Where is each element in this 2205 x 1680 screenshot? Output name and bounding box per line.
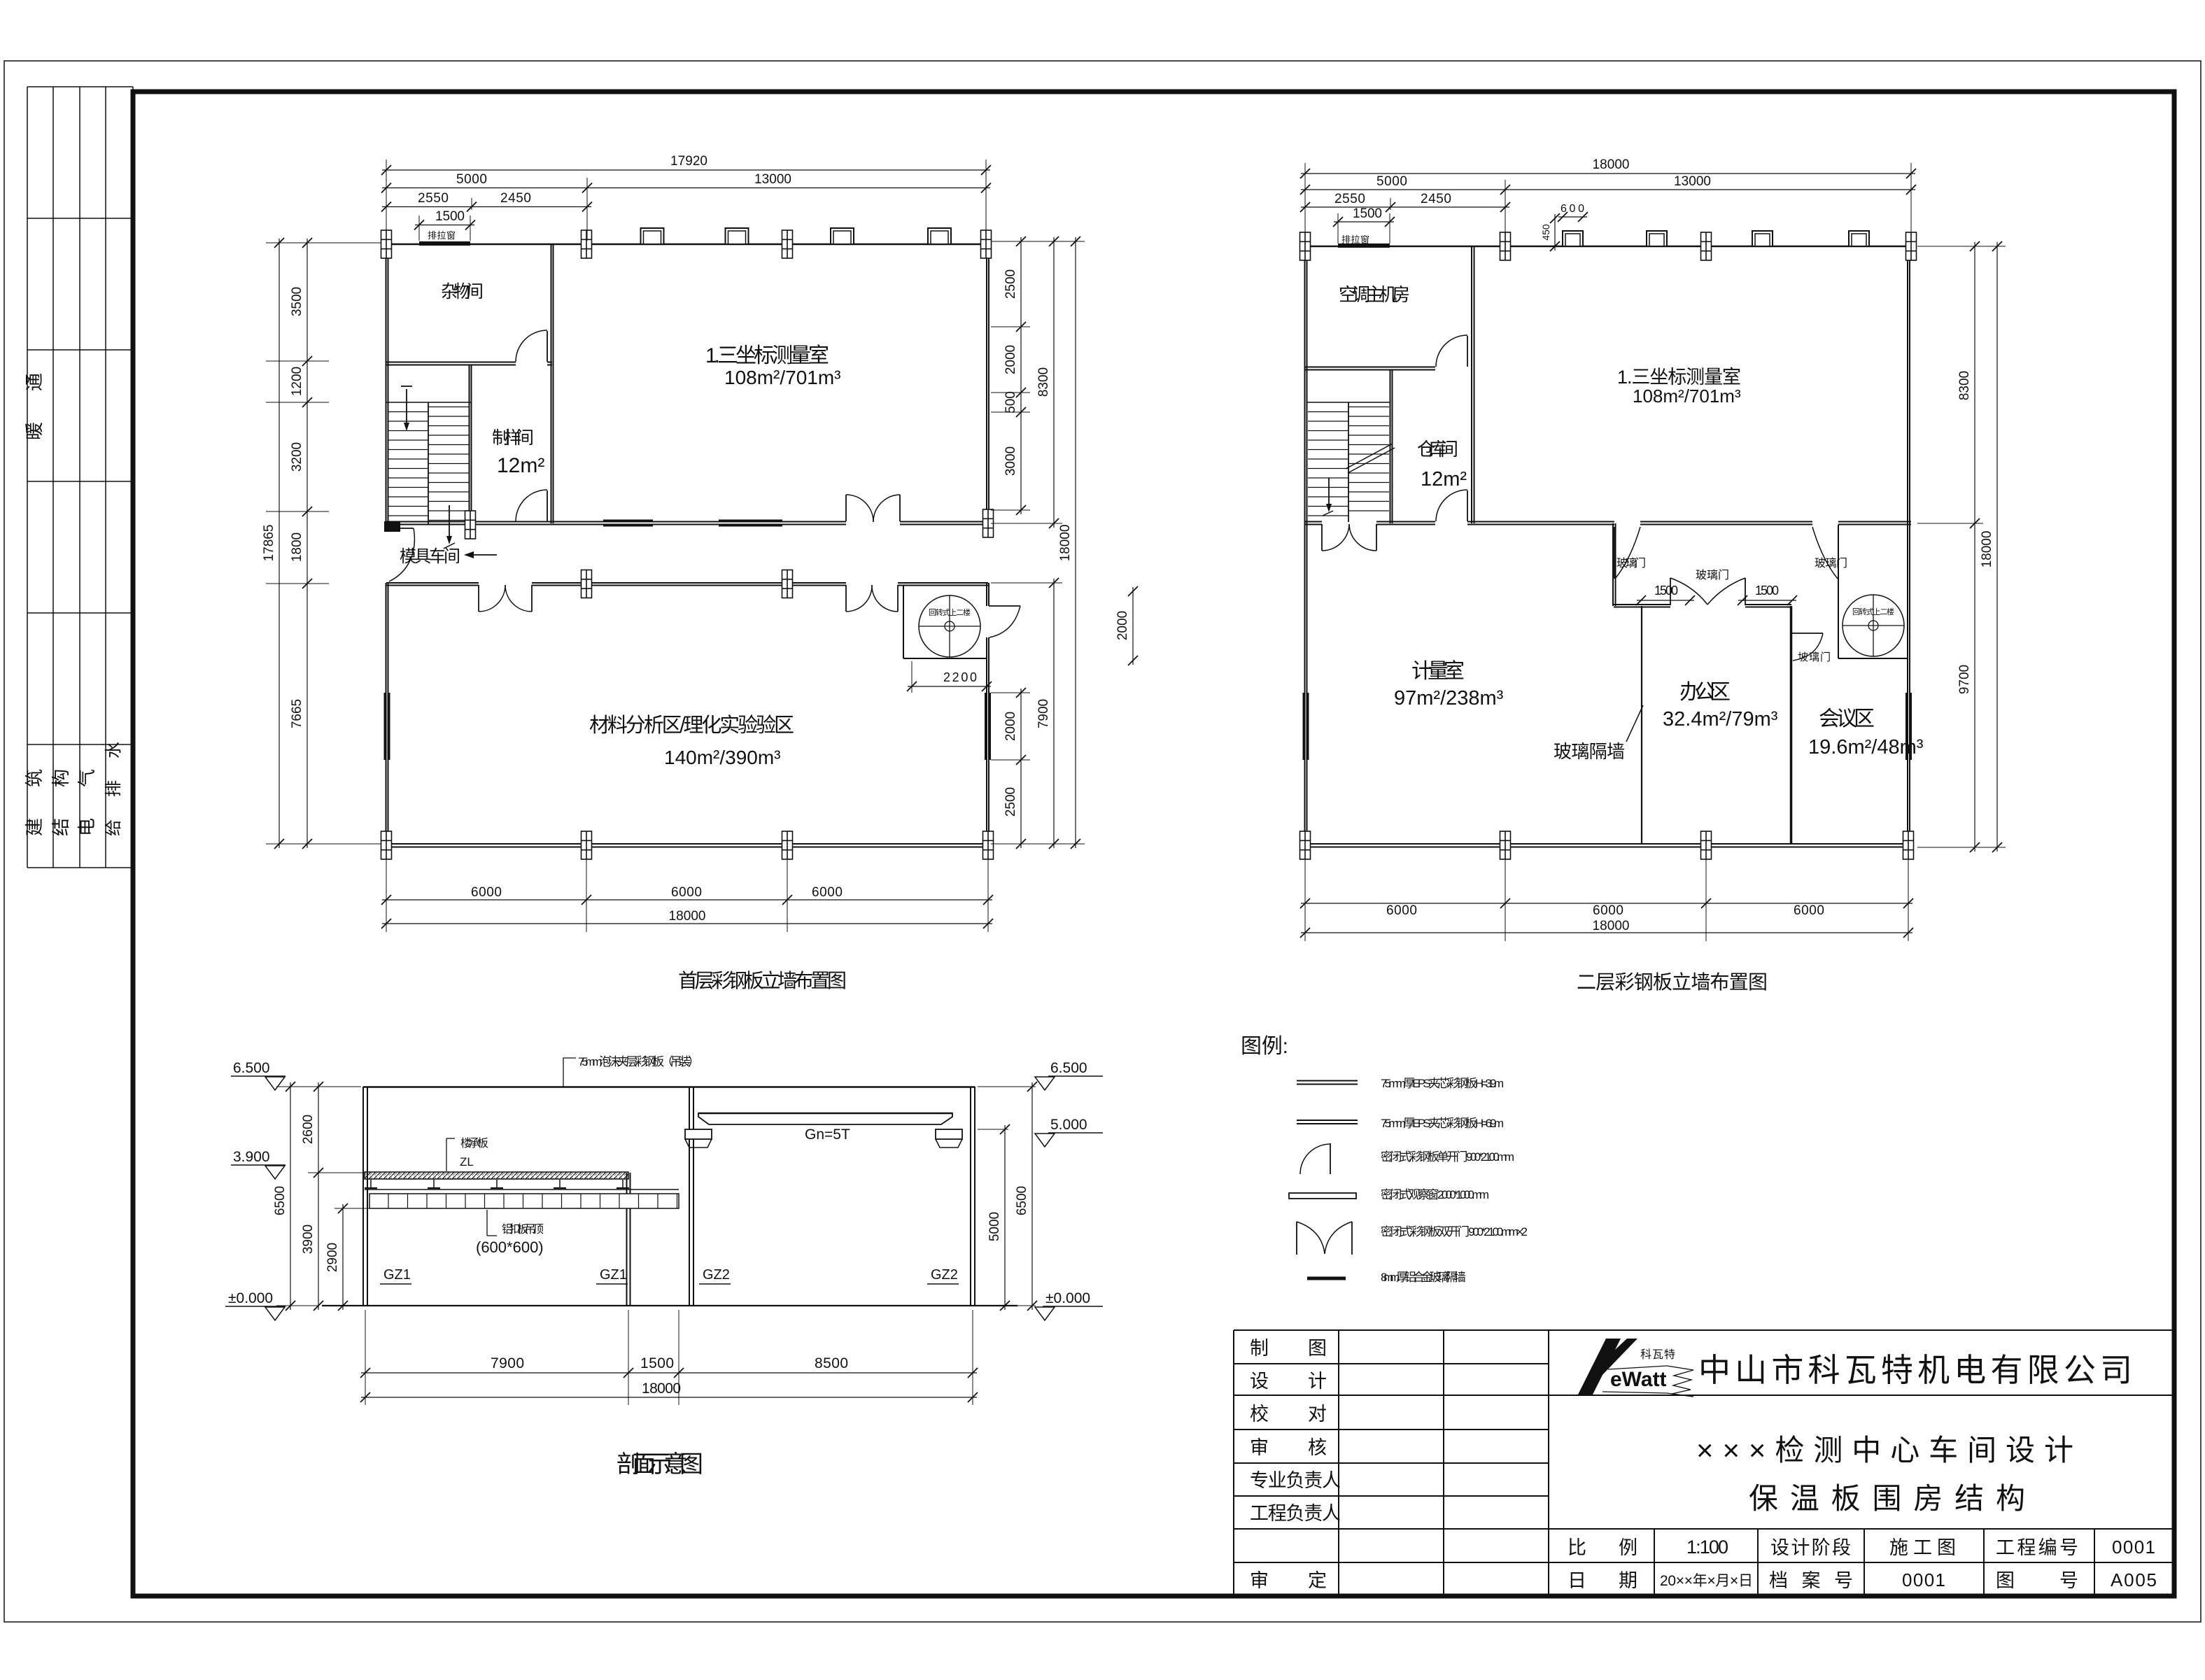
svg-text:档 案 号: 档 案 号 — [1769, 1570, 1853, 1591]
svg-text:玻璃门: 玻璃门 — [1696, 569, 1729, 581]
svg-text:保温板围房结构: 保温板围房结构 — [1749, 1482, 2025, 1515]
svg-text:97m²/238m³: 97m²/238m³ — [1394, 687, 1504, 710]
svg-text:6000: 6000 — [471, 885, 502, 900]
svg-text:ZL: ZL — [460, 1155, 474, 1169]
svg-text:8300: 8300 — [1957, 371, 1972, 400]
svg-text:筑: 筑 — [24, 769, 45, 787]
svg-text:18000: 18000 — [1593, 919, 1630, 933]
svg-text:18000: 18000 — [1980, 531, 1994, 568]
svg-text:±0.000: ±0.000 — [228, 1290, 273, 1306]
svg-text:12m²: 12m² — [1421, 468, 1467, 490]
svg-text:6000: 6000 — [812, 885, 843, 900]
svg-text:气: 气 — [76, 769, 97, 787]
svg-text:1800: 1800 — [290, 532, 304, 562]
svg-text:13000: 13000 — [1674, 174, 1711, 189]
svg-text:75mm厚EPS夹芯彩钢板 H=3.9m: 75mm厚EPS夹芯彩钢板 H=3.9m — [1381, 1077, 1504, 1090]
svg-text:108m²/701m³: 108m²/701m³ — [1633, 386, 1741, 407]
svg-text:2500: 2500 — [1003, 787, 1018, 817]
svg-text:6000: 6000 — [1386, 903, 1417, 918]
svg-text:建: 建 — [24, 818, 45, 836]
svg-text:排: 排 — [104, 780, 123, 797]
svg-text:3900: 3900 — [301, 1224, 316, 1254]
svg-text:杂物间: 杂物间 — [441, 282, 484, 302]
svg-text:首层彩钢板立墙布置图: 首层彩钢板立墙布置图 — [678, 970, 847, 991]
svg-text:20××年×月×日: 20××年×月×日 — [1660, 1573, 1753, 1589]
svg-text:7665: 7665 — [290, 699, 304, 728]
svg-text:2500: 2500 — [1003, 269, 1018, 299]
svg-text:密闭式观察窗 2000*1000mm: 密闭式观察窗 2000*1000mm — [1381, 1188, 1489, 1201]
svg-text:通: 通 — [24, 373, 45, 391]
svg-text:8mm厚铝合金玻璃隔墙: 8mm厚铝合金玻璃隔墙 — [1381, 1271, 1466, 1284]
svg-text:9700: 9700 — [1957, 665, 1972, 694]
svg-text:仓库间: 仓库间 — [1417, 439, 1458, 460]
svg-text:2000: 2000 — [1003, 712, 1018, 741]
svg-text:Gn=5T: Gn=5T — [805, 1127, 850, 1143]
svg-text:±0.000: ±0.000 — [1045, 1290, 1090, 1306]
svg-text:构: 构 — [50, 769, 71, 787]
svg-text:6000: 6000 — [671, 885, 702, 900]
svg-text:回转式上二楼: 回转式上二楼 — [929, 607, 971, 617]
svg-text:排拉窗: 排拉窗 — [428, 230, 456, 241]
svg-text:玻璃隔墙: 玻璃隔墙 — [1554, 741, 1625, 762]
svg-text:3000: 3000 — [1003, 446, 1018, 476]
svg-text:7900: 7900 — [491, 1355, 524, 1371]
svg-text:审 定: 审 定 — [1250, 1570, 1327, 1591]
svg-text:6000: 6000 — [1794, 903, 1824, 918]
svg-text:校 对: 校 对 — [1250, 1404, 1327, 1425]
svg-text:12m²: 12m² — [497, 454, 544, 477]
svg-text:6500: 6500 — [273, 1186, 288, 1215]
svg-text:6.500: 6.500 — [1050, 1060, 1087, 1076]
svg-text:18000: 18000 — [669, 909, 706, 924]
svg-text:GZ1: GZ1 — [600, 1267, 627, 1283]
svg-text:施工图: 施工图 — [1889, 1537, 1956, 1558]
svg-text:2600: 2600 — [301, 1115, 316, 1144]
svg-text:6500: 6500 — [1015, 1186, 1029, 1215]
svg-text:2000: 2000 — [1115, 611, 1130, 640]
svg-text:17920: 17920 — [670, 154, 707, 169]
svg-text:13000: 13000 — [754, 172, 791, 187]
svg-text:0001: 0001 — [1902, 1569, 1945, 1590]
svg-text:密闭式彩钢板双开门 900*2100mm×2: 密闭式彩钢板双开门 900*2100mm×2 — [1381, 1225, 1528, 1238]
svg-text:铝扣板吊顶: 铝扣板吊顶 — [502, 1223, 544, 1236]
svg-text:图 号: 图 号 — [1996, 1570, 2078, 1591]
svg-text:制 图: 制 图 — [1250, 1338, 1327, 1359]
svg-text:专业负责人: 专业负责人 — [1250, 1470, 1341, 1491]
svg-text:GZ2: GZ2 — [931, 1267, 958, 1283]
svg-text:2900: 2900 — [325, 1243, 340, 1272]
svg-text:600: 600 — [1561, 203, 1584, 215]
svg-text:玻璃门: 玻璃门 — [1616, 557, 1646, 570]
svg-text:GZ1: GZ1 — [383, 1267, 411, 1283]
svg-text:1200: 1200 — [290, 367, 304, 396]
svg-text:5.000: 5.000 — [1050, 1117, 1087, 1133]
svg-text:1500: 1500 — [1353, 206, 1382, 221]
svg-text:2450: 2450 — [500, 191, 531, 206]
svg-text:18000: 18000 — [1593, 157, 1630, 172]
svg-text:会议区: 会议区 — [1819, 707, 1875, 730]
svg-text:楼承板: 楼承板 — [460, 1137, 488, 1150]
svg-text:8500: 8500 — [815, 1355, 848, 1371]
svg-text:电: 电 — [76, 818, 97, 836]
svg-text:1:100: 1:100 — [1686, 1537, 1728, 1558]
svg-text:17865: 17865 — [262, 525, 276, 562]
svg-text:结: 结 — [50, 818, 71, 836]
svg-text:1500: 1500 — [640, 1355, 674, 1371]
svg-text:1500: 1500 — [1654, 584, 1678, 598]
svg-text:玻璃门: 玻璃门 — [1815, 557, 1847, 570]
svg-text:2450: 2450 — [1421, 192, 1451, 206]
svg-text:18000: 18000 — [1058, 525, 1073, 562]
svg-text:140m²/390m³: 140m²/390m³ — [664, 747, 781, 768]
svg-text:二层彩钢板立墙布置图: 二层彩钢板立墙布置图 — [1577, 971, 1768, 993]
svg-text:32.4m²/79m³: 32.4m²/79m³ — [1663, 708, 1778, 730]
svg-text:给: 给 — [104, 819, 123, 836]
svg-text:8300: 8300 — [1036, 367, 1051, 397]
svg-text:审 核: 审 核 — [1250, 1437, 1327, 1458]
svg-text:回转式上二楼: 回转式上二楼 — [1852, 607, 1894, 616]
svg-text:5000: 5000 — [456, 172, 487, 187]
svg-text:2550: 2550 — [418, 191, 449, 206]
svg-text:7900: 7900 — [1036, 699, 1051, 728]
svg-text:暖: 暖 — [24, 422, 45, 440]
svg-text:18000: 18000 — [642, 1381, 681, 1397]
svg-text:设 计: 设 计 — [1250, 1371, 1327, 1392]
svg-text:水: 水 — [104, 742, 123, 758]
svg-text:排拉窗: 排拉窗 — [1341, 234, 1369, 245]
svg-text:6000: 6000 — [1593, 903, 1623, 918]
svg-text:模具车间: 模具车间 — [400, 547, 460, 566]
svg-text:密闭式彩钢板单开门 900*2100mm: 密闭式彩钢板单开门 900*2100mm — [1381, 1150, 1514, 1164]
svg-text:图例:: 图例: — [1241, 1035, 1288, 1058]
svg-text:坡璃门: 坡璃门 — [1798, 651, 1831, 663]
svg-text:GZ2: GZ2 — [703, 1267, 730, 1283]
svg-text:3500: 3500 — [290, 287, 304, 316]
svg-text:75mm厚EPS夹芯彩钢板 H=6.9m: 75mm厚EPS夹芯彩钢板 H=6.9m — [1381, 1117, 1504, 1130]
svg-text:3.900: 3.900 — [233, 1149, 270, 1165]
svg-text:75mm泡沫夹层彩钢板（吊装）: 75mm泡沫夹层彩钢板（吊装） — [578, 1055, 700, 1068]
svg-text:1500: 1500 — [435, 209, 465, 224]
svg-text:工程负责人: 工程负责人 — [1250, 1503, 1341, 1524]
svg-text:比 例: 比 例 — [1568, 1537, 1637, 1558]
svg-text:2550: 2550 — [1334, 192, 1365, 206]
svg-text:计量室: 计量室 — [1411, 660, 1465, 683]
svg-text:科瓦特: 科瓦特 — [1640, 1348, 1675, 1361]
svg-text:3200: 3200 — [290, 442, 304, 472]
svg-text:剖面示意图: 剖面示意图 — [617, 1451, 703, 1478]
svg-text:办公区: 办公区 — [1679, 681, 1731, 704]
svg-text:日 期: 日 期 — [1568, 1570, 1637, 1591]
svg-text:材料分析区/理化实验验区: 材料分析区/理化实验验区 — [589, 714, 794, 737]
svg-text:空调主机房: 空调主机房 — [1339, 284, 1410, 305]
svg-text:1.三坐标测量室: 1.三坐标测量室 — [1617, 367, 1741, 388]
svg-text:5000: 5000 — [1376, 174, 1407, 189]
svg-text:108m²/701m³: 108m²/701m³ — [724, 367, 841, 388]
svg-text:0001: 0001 — [2112, 1537, 2155, 1558]
svg-text:5000: 5000 — [987, 1212, 1002, 1241]
svg-text:6.500: 6.500 — [233, 1060, 270, 1076]
svg-text:A005: A005 — [2111, 1569, 2157, 1590]
svg-text:500: 500 — [1003, 391, 1018, 414]
svg-text:1500: 1500 — [1755, 584, 1779, 598]
svg-text:19.6m²/48m³: 19.6m²/48m³ — [1808, 736, 1924, 758]
svg-text:制样间: 制样间 — [492, 428, 534, 448]
svg-text:450: 450 — [1540, 224, 1551, 241]
svg-text:(600*600): (600*600) — [476, 1238, 544, 1256]
svg-text:2000: 2000 — [1003, 345, 1018, 374]
svg-text:1.三坐标测量室: 1.三坐标测量室 — [705, 344, 829, 367]
svg-text:eWatt: eWatt — [1610, 1368, 1667, 1391]
